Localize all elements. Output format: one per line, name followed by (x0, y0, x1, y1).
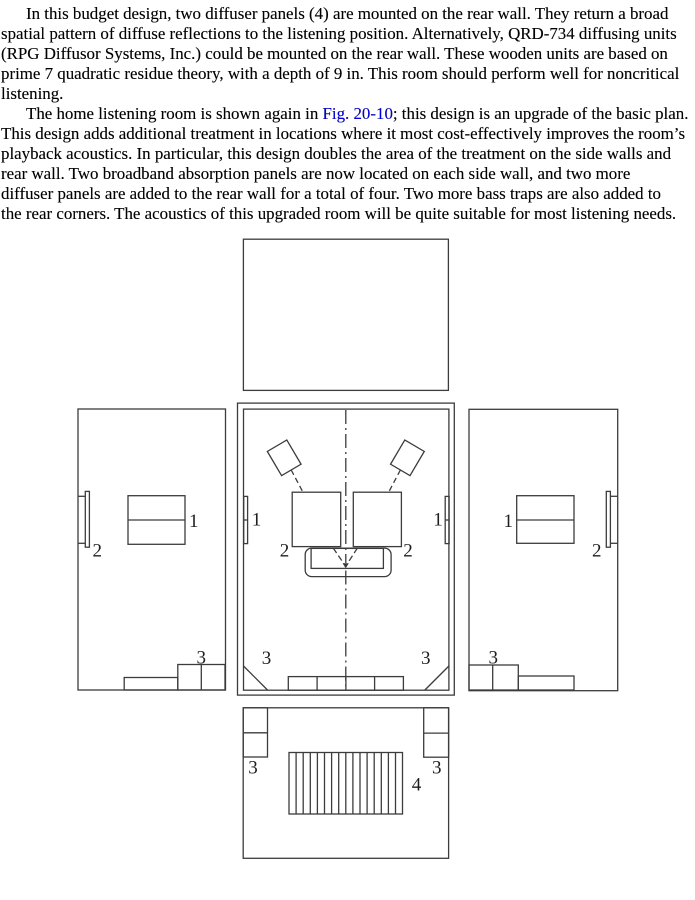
svg-text:3: 3 (197, 648, 207, 669)
svg-text:3: 3 (421, 648, 431, 669)
svg-text:2: 2 (592, 541, 602, 562)
svg-text:3: 3 (248, 757, 257, 778)
svg-text:1: 1 (433, 510, 443, 531)
svg-text:2: 2 (403, 541, 413, 562)
svg-text:4: 4 (412, 774, 422, 795)
svg-text:1: 1 (189, 511, 199, 532)
svg-text:1: 1 (252, 510, 261, 531)
svg-text:2: 2 (93, 541, 103, 562)
svg-text:3: 3 (262, 648, 272, 669)
svg-text:1: 1 (504, 511, 514, 532)
svg-text:3: 3 (432, 757, 442, 778)
svg-text:3: 3 (489, 648, 499, 669)
svg-text:2: 2 (280, 541, 290, 562)
